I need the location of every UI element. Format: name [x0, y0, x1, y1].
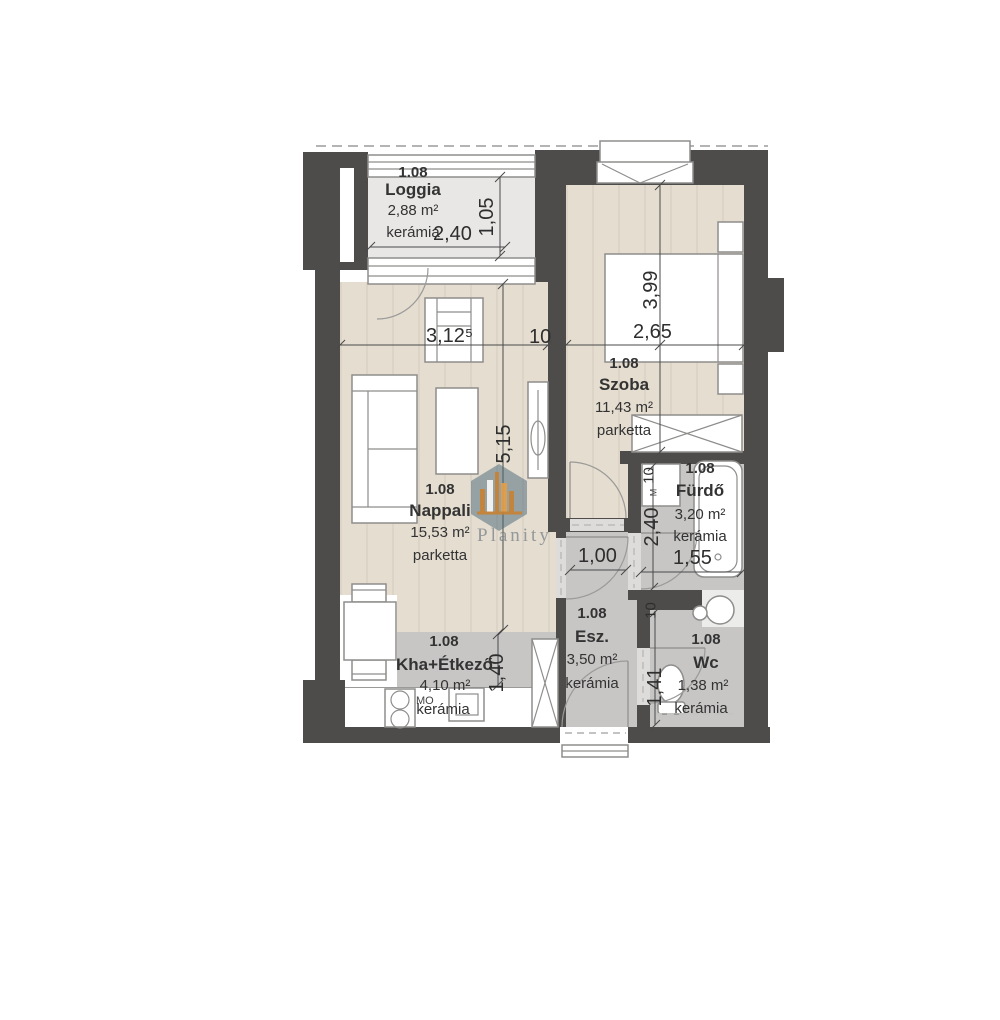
- watermark-text: Planity: [477, 525, 552, 546]
- watermark: Planity: [0, 0, 1000, 1020]
- watermark-logo: [471, 464, 527, 531]
- floor-plan: 1.08 Loggia 2,88 m² kerámia 2,40 1,05 1.…: [0, 0, 1000, 1020]
